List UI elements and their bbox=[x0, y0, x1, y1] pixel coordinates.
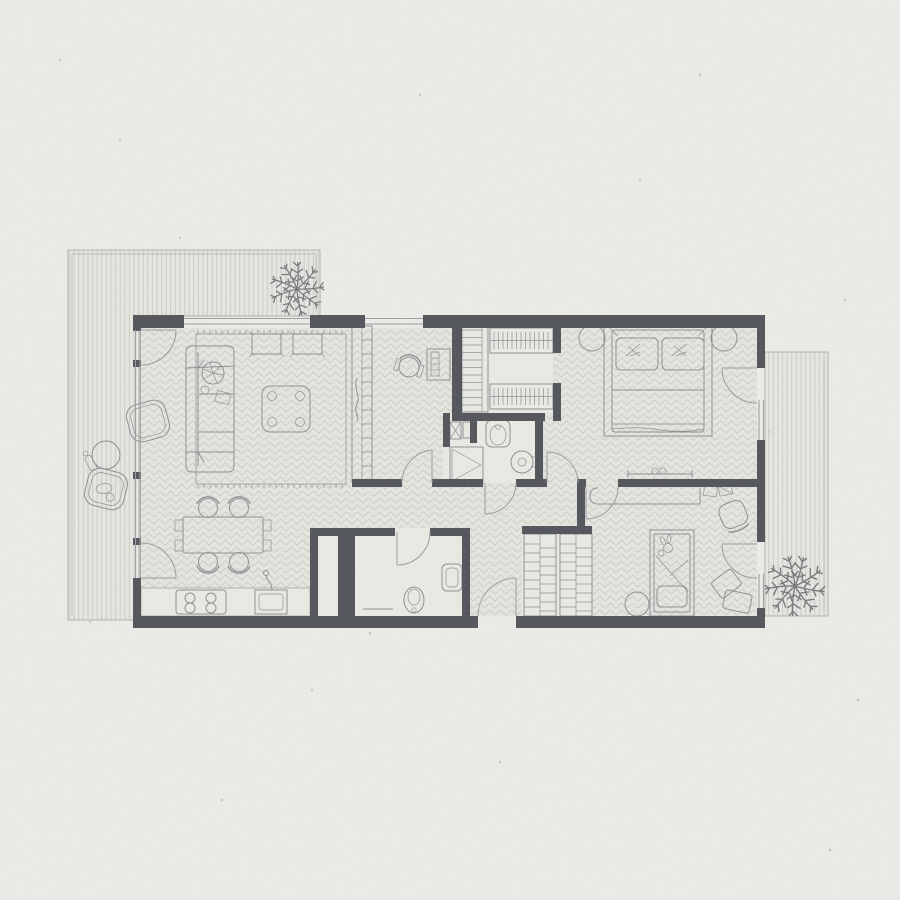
wall-closet-east bbox=[553, 383, 561, 421]
wall-closet-west bbox=[452, 315, 462, 420]
wall-hall-north bbox=[516, 479, 547, 487]
shaft-floor bbox=[318, 528, 338, 616]
wall-wardrobe-north bbox=[522, 526, 592, 534]
bathroom-main-floor bbox=[443, 413, 543, 483]
wall-closet-east bbox=[553, 315, 561, 353]
wall-closet-south bbox=[452, 413, 545, 421]
wall-shaft-west bbox=[310, 528, 318, 616]
wall-niche bbox=[470, 421, 477, 443]
wall-shaft-cap bbox=[310, 528, 355, 536]
wall-hall-north bbox=[352, 479, 402, 487]
wall-hall-north bbox=[432, 479, 483, 487]
wall-bath-main-west bbox=[443, 413, 450, 447]
floor-plan-svg bbox=[0, 0, 900, 900]
wall-bath-guest-east bbox=[462, 528, 470, 616]
bathroom-guest-floor bbox=[355, 528, 470, 616]
wall-bath-main-east bbox=[535, 421, 543, 483]
wall-bedroom-south bbox=[618, 479, 757, 487]
wall-kids-west bbox=[577, 487, 585, 528]
wall-shaft-east bbox=[338, 528, 355, 616]
floor-plan-canvas bbox=[0, 0, 900, 900]
wall-bath-guest-north bbox=[430, 528, 462, 536]
wall-bath-guest-north bbox=[355, 528, 395, 536]
